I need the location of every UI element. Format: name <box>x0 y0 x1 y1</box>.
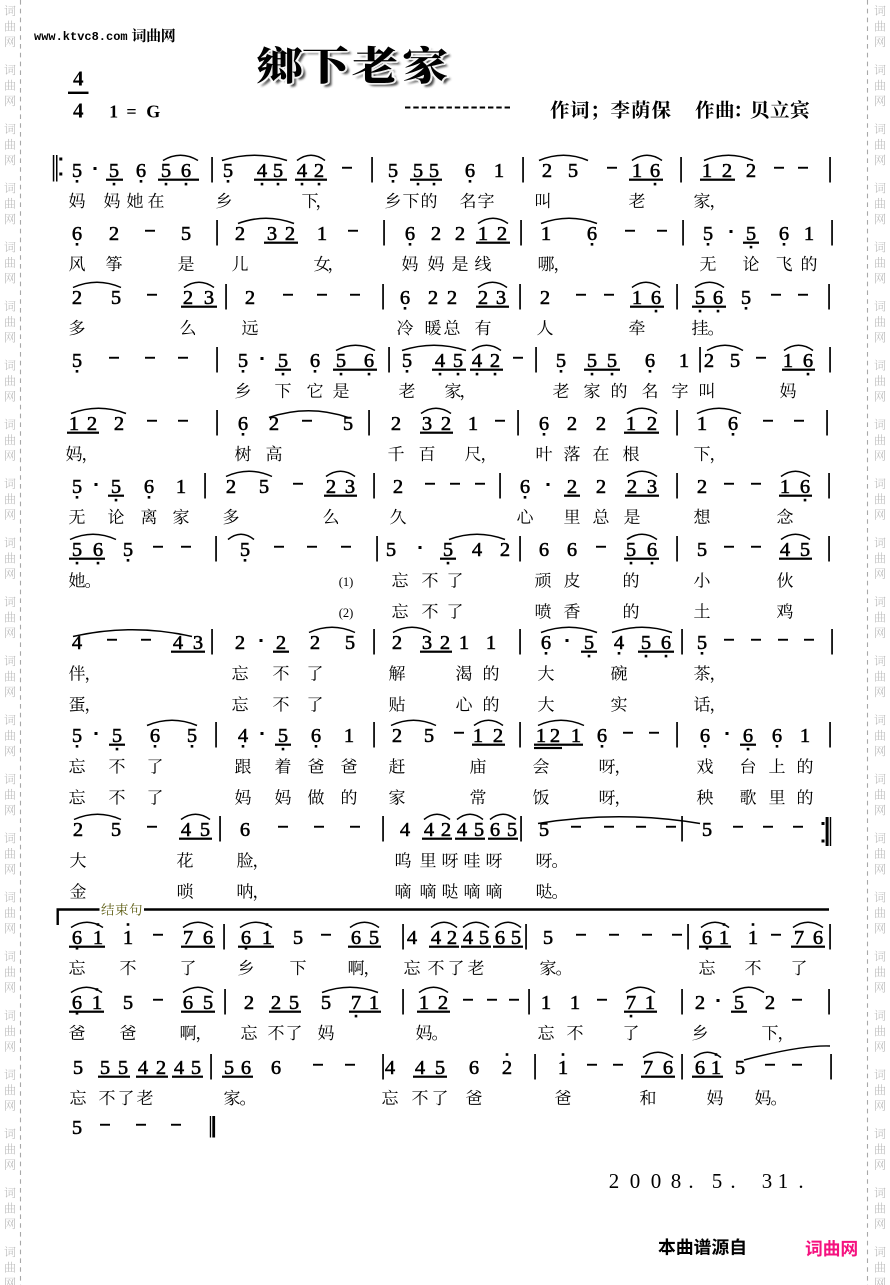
svg-text:1: 1 <box>92 992 102 1014</box>
svg-text:6: 6 <box>364 350 374 372</box>
svg-text:2: 2 <box>497 223 507 245</box>
svg-text:1: 1 <box>262 927 272 949</box>
svg-text:2: 2 <box>447 927 457 949</box>
svg-text:1: 1 <box>748 927 758 949</box>
svg-text:6: 6 <box>743 725 753 747</box>
svg-text:7: 7 <box>643 1057 653 1079</box>
svg-text:2: 2 <box>72 287 82 309</box>
svg-text:1: 1 <box>558 1057 568 1079</box>
svg-text:5: 5 <box>123 992 133 1014</box>
svg-text:1: 1 <box>626 413 636 435</box>
svg-text:6: 6 <box>645 350 655 372</box>
svg-text:3: 3 <box>267 223 277 245</box>
svg-text:0: 0 <box>651 1169 662 1193</box>
svg-text:6: 6 <box>72 223 82 245</box>
svg-text:6: 6 <box>150 725 160 747</box>
svg-text:5: 5 <box>111 476 121 498</box>
svg-text:1: 1 <box>571 725 581 747</box>
svg-text:2: 2 <box>455 223 465 245</box>
svg-text:5: 5 <box>734 992 744 1014</box>
svg-text:4: 4 <box>457 819 467 841</box>
svg-text:3: 3 <box>345 476 355 498</box>
svg-text:5: 5 <box>712 1169 723 1193</box>
svg-text:4: 4 <box>431 927 441 949</box>
svg-text:1: 1 <box>632 287 642 309</box>
svg-text:.: . <box>688 1169 693 1193</box>
svg-text:5: 5 <box>345 632 355 654</box>
svg-text:2: 2 <box>722 160 732 182</box>
svg-text:1: 1 <box>719 927 729 949</box>
svg-text:4: 4 <box>73 67 84 91</box>
svg-text:3: 3 <box>193 632 203 654</box>
svg-text:5: 5 <box>200 819 210 841</box>
svg-text:4: 4 <box>614 632 624 654</box>
svg-text:6: 6 <box>800 476 810 498</box>
svg-text:6: 6 <box>469 1057 479 1079</box>
svg-text:5: 5 <box>695 287 705 309</box>
svg-text:2: 2 <box>438 992 448 1014</box>
svg-text:1: 1 <box>486 632 496 654</box>
svg-text:2: 2 <box>647 413 657 435</box>
svg-text:5: 5 <box>741 287 751 309</box>
svg-text:3: 3 <box>762 1169 773 1193</box>
svg-text:0: 0 <box>630 1169 641 1193</box>
svg-text:5: 5 <box>568 160 578 182</box>
svg-text:4: 4 <box>424 819 434 841</box>
svg-text:2: 2 <box>542 160 552 182</box>
svg-text:2: 2 <box>285 223 295 245</box>
svg-text:6: 6 <box>241 927 251 949</box>
svg-text:5: 5 <box>556 350 566 372</box>
svg-text:1: 1 <box>344 725 354 747</box>
svg-text:6: 6 <box>181 160 191 182</box>
svg-text:5: 5 <box>72 1117 82 1139</box>
svg-text:5: 5 <box>259 476 269 498</box>
svg-text:5: 5 <box>626 539 636 561</box>
svg-text:5: 5 <box>703 223 713 245</box>
svg-text:6: 6 <box>587 223 597 245</box>
svg-text:6: 6 <box>661 632 671 654</box>
svg-text:4: 4 <box>463 927 473 949</box>
svg-text:5: 5 <box>730 350 740 372</box>
svg-text:2: 2 <box>441 413 451 435</box>
svg-text:1: 1 <box>778 1169 789 1193</box>
svg-text:5: 5 <box>386 539 396 561</box>
svg-text:1: 1 <box>419 992 429 1014</box>
svg-text:6: 6 <box>144 476 154 498</box>
svg-text:2: 2 <box>502 1057 512 1079</box>
svg-text:5: 5 <box>413 160 423 182</box>
svg-text:5: 5 <box>187 725 197 747</box>
svg-text:2: 2 <box>235 632 245 654</box>
svg-text:6: 6 <box>713 287 723 309</box>
svg-text:1: 1 <box>473 725 483 747</box>
svg-text:6: 6 <box>495 927 505 949</box>
svg-text:1: 1 <box>468 413 478 435</box>
svg-text:5: 5 <box>584 632 594 654</box>
svg-text:6: 6 <box>695 1057 705 1079</box>
svg-text:2: 2 <box>226 476 236 498</box>
svg-text:5: 5 <box>123 539 133 561</box>
svg-text:5: 5 <box>278 725 288 747</box>
svg-text:5: 5 <box>474 819 484 841</box>
svg-text:2: 2 <box>310 632 320 654</box>
svg-text:1: 1 <box>632 160 642 182</box>
svg-text:1: 1 <box>645 992 655 1014</box>
svg-text:6: 6 <box>813 927 823 949</box>
svg-text:3: 3 <box>422 413 432 435</box>
svg-text:4: 4 <box>400 819 410 841</box>
svg-text:2: 2 <box>540 287 550 309</box>
svg-text:1: 1 <box>459 632 469 654</box>
svg-text:1: 1 <box>804 223 814 245</box>
svg-text:2: 2 <box>596 476 606 498</box>
svg-text:4: 4 <box>297 160 307 182</box>
svg-text:5: 5 <box>435 1057 445 1079</box>
svg-text:5: 5 <box>112 725 122 747</box>
svg-text:5: 5 <box>697 539 707 561</box>
svg-text:2: 2 <box>109 223 119 245</box>
svg-text:6: 6 <box>240 819 250 841</box>
svg-text:4: 4 <box>780 539 790 561</box>
svg-text:5: 5 <box>161 160 171 182</box>
svg-text:5: 5 <box>289 992 299 1014</box>
svg-text:6: 6 <box>779 223 789 245</box>
svg-text:4: 4 <box>415 1057 425 1079</box>
svg-text:5: 5 <box>203 992 213 1014</box>
svg-text:6: 6 <box>728 413 738 435</box>
svg-text:5: 5 <box>72 350 82 372</box>
svg-text:7: 7 <box>794 927 804 949</box>
svg-text:6: 6 <box>271 1057 281 1079</box>
svg-text:2: 2 <box>500 539 510 561</box>
svg-text:4: 4 <box>257 160 267 182</box>
svg-text:5: 5 <box>73 1057 83 1079</box>
svg-text:5: 5 <box>336 350 346 372</box>
svg-text:5: 5 <box>507 819 517 841</box>
svg-text:2: 2 <box>441 819 451 841</box>
svg-text:2: 2 <box>276 632 286 654</box>
svg-text:5: 5 <box>181 223 191 245</box>
svg-text:6: 6 <box>651 287 661 309</box>
svg-text:2: 2 <box>392 725 402 747</box>
svg-text:5: 5 <box>278 350 288 372</box>
svg-text:5: 5 <box>735 1057 745 1079</box>
svg-text:1: 1 <box>123 927 133 949</box>
svg-text:5: 5 <box>587 350 597 372</box>
svg-text:5: 5 <box>607 350 617 372</box>
svg-text:2: 2 <box>567 476 577 498</box>
svg-text:2: 2 <box>245 287 255 309</box>
svg-text:2: 2 <box>87 413 97 435</box>
svg-text:1: 1 <box>109 102 118 122</box>
svg-text:6: 6 <box>490 819 500 841</box>
svg-text:5: 5 <box>369 927 379 949</box>
svg-text:.: . <box>798 1169 803 1193</box>
svg-text:5: 5 <box>240 539 250 561</box>
svg-text:2: 2 <box>478 287 488 309</box>
svg-text:4: 4 <box>174 1057 184 1079</box>
svg-text:www.ktvc8.com: www.ktvc8.com <box>34 30 128 44</box>
svg-text:1: 1 <box>369 992 379 1014</box>
svg-text:1: 1 <box>800 725 810 747</box>
svg-text:5: 5 <box>293 927 303 949</box>
svg-text:5: 5 <box>453 350 463 372</box>
svg-text:6: 6 <box>702 927 712 949</box>
svg-text:6: 6 <box>700 725 710 747</box>
svg-text:5: 5 <box>118 1057 128 1079</box>
svg-text:6: 6 <box>351 927 361 949</box>
svg-text:1: 1 <box>570 992 580 1014</box>
svg-text:6: 6 <box>772 725 782 747</box>
svg-text:6: 6 <box>203 927 213 949</box>
svg-text:5: 5 <box>72 725 82 747</box>
svg-text:2: 2 <box>393 476 403 498</box>
svg-text:4: 4 <box>435 350 445 372</box>
svg-text:2: 2 <box>156 1057 166 1079</box>
svg-text:4: 4 <box>181 819 191 841</box>
svg-text:6: 6 <box>803 350 813 372</box>
svg-text:5: 5 <box>111 287 121 309</box>
svg-text:2: 2 <box>493 725 503 747</box>
svg-text:1: 1 <box>679 350 689 372</box>
svg-text:1: 1 <box>69 413 79 435</box>
svg-text:3: 3 <box>422 632 432 654</box>
svg-text:6: 6 <box>311 725 321 747</box>
svg-text:6: 6 <box>647 539 657 561</box>
svg-text:2: 2 <box>746 160 756 182</box>
svg-text:6: 6 <box>310 350 320 372</box>
svg-text:5: 5 <box>641 632 651 654</box>
svg-text:4: 4 <box>385 1057 395 1079</box>
svg-text:5: 5 <box>224 1057 234 1079</box>
svg-text:6: 6 <box>93 539 103 561</box>
svg-text:2: 2 <box>596 413 606 435</box>
svg-text:5: 5 <box>111 819 121 841</box>
svg-text:6: 6 <box>597 725 607 747</box>
svg-text:2: 2 <box>490 350 500 372</box>
svg-text:2: 2 <box>235 223 245 245</box>
svg-text:1: 1 <box>93 927 103 949</box>
svg-text:(2): (2) <box>339 606 354 620</box>
svg-text:2: 2 <box>567 413 577 435</box>
svg-text:7: 7 <box>351 992 361 1014</box>
svg-text:2: 2 <box>392 632 402 654</box>
svg-text:1: 1 <box>697 413 707 435</box>
svg-text:6: 6 <box>663 1057 673 1079</box>
svg-text:2: 2 <box>73 819 83 841</box>
svg-text:(1): (1) <box>339 575 354 589</box>
svg-text:2: 2 <box>314 160 324 182</box>
svg-text:2: 2 <box>697 476 707 498</box>
svg-text:2: 2 <box>704 350 714 372</box>
svg-text:1: 1 <box>541 992 551 1014</box>
svg-text:6: 6 <box>539 413 549 435</box>
svg-text:.: . <box>730 1169 735 1193</box>
svg-text:2: 2 <box>695 992 705 1014</box>
svg-text:5: 5 <box>223 160 233 182</box>
svg-text:8: 8 <box>671 1169 682 1193</box>
svg-text:4: 4 <box>73 99 84 123</box>
svg-text:5: 5 <box>273 160 283 182</box>
svg-text:G: G <box>146 102 160 122</box>
svg-text:5: 5 <box>429 160 439 182</box>
svg-text:4: 4 <box>472 539 482 561</box>
svg-text:5: 5 <box>479 927 489 949</box>
svg-text:5: 5 <box>511 927 521 949</box>
svg-text:=: = <box>126 102 136 122</box>
svg-text:6: 6 <box>405 223 415 245</box>
svg-text:5: 5 <box>321 992 331 1014</box>
svg-text:6: 6 <box>539 539 549 561</box>
svg-text:6: 6 <box>465 160 475 182</box>
svg-text:2: 2 <box>440 632 450 654</box>
svg-text:4: 4 <box>472 350 482 372</box>
svg-text:1: 1 <box>702 160 712 182</box>
svg-text:5: 5 <box>800 539 810 561</box>
svg-text:5: 5 <box>388 160 398 182</box>
svg-text:1: 1 <box>780 476 790 498</box>
svg-text:5: 5 <box>238 350 248 372</box>
svg-text:5: 5 <box>702 819 712 841</box>
svg-text:5: 5 <box>746 223 756 245</box>
svg-text:4: 4 <box>407 927 417 949</box>
svg-text:6: 6 <box>238 413 248 435</box>
svg-text:7: 7 <box>183 927 193 949</box>
svg-text:2: 2 <box>447 287 457 309</box>
svg-text:5: 5 <box>109 160 119 182</box>
svg-text:5: 5 <box>191 1057 201 1079</box>
svg-text:1: 1 <box>176 476 186 498</box>
svg-text:2: 2 <box>609 1169 620 1193</box>
svg-text:6: 6 <box>541 632 551 654</box>
svg-text:2: 2 <box>550 725 560 747</box>
svg-text:1: 1 <box>536 725 546 747</box>
svg-text:2: 2 <box>428 287 438 309</box>
svg-text:2: 2 <box>627 476 637 498</box>
svg-text:5: 5 <box>424 725 434 747</box>
svg-text:1: 1 <box>711 1057 721 1079</box>
svg-text:6: 6 <box>400 287 410 309</box>
svg-text:5: 5 <box>543 927 553 949</box>
svg-text:6: 6 <box>183 992 193 1014</box>
svg-text:5: 5 <box>402 350 412 372</box>
svg-text:5: 5 <box>100 1057 110 1079</box>
svg-text:2: 2 <box>114 413 124 435</box>
svg-text:6: 6 <box>72 927 82 949</box>
svg-text:5: 5 <box>443 539 453 561</box>
svg-text:5: 5 <box>72 476 82 498</box>
svg-text:5: 5 <box>72 539 82 561</box>
svg-text:6: 6 <box>136 160 146 182</box>
svg-text:7: 7 <box>626 992 636 1014</box>
svg-text:3: 3 <box>647 476 657 498</box>
svg-text:2: 2 <box>271 992 281 1014</box>
svg-text:5: 5 <box>343 413 353 435</box>
svg-text:2: 2 <box>431 223 441 245</box>
svg-text:3: 3 <box>496 287 506 309</box>
svg-text:2: 2 <box>765 992 775 1014</box>
svg-text:2: 2 <box>326 476 336 498</box>
svg-text:3: 3 <box>204 287 214 309</box>
svg-text:1: 1 <box>783 350 793 372</box>
svg-text:1: 1 <box>478 223 488 245</box>
svg-text:6: 6 <box>241 1057 251 1079</box>
svg-text:1: 1 <box>541 223 551 245</box>
svg-text:4: 4 <box>238 725 248 747</box>
svg-text:1: 1 <box>317 223 327 245</box>
svg-text:6: 6 <box>567 539 577 561</box>
svg-text:5: 5 <box>72 160 82 182</box>
svg-text:4: 4 <box>138 1057 148 1079</box>
svg-text:6: 6 <box>650 160 660 182</box>
svg-text:2: 2 <box>183 287 193 309</box>
svg-text:2: 2 <box>244 992 254 1014</box>
svg-text:2: 2 <box>391 413 401 435</box>
svg-text:6: 6 <box>72 992 82 1014</box>
svg-text:5: 5 <box>697 632 707 654</box>
svg-text:6: 6 <box>520 476 530 498</box>
svg-text:1: 1 <box>494 160 504 182</box>
